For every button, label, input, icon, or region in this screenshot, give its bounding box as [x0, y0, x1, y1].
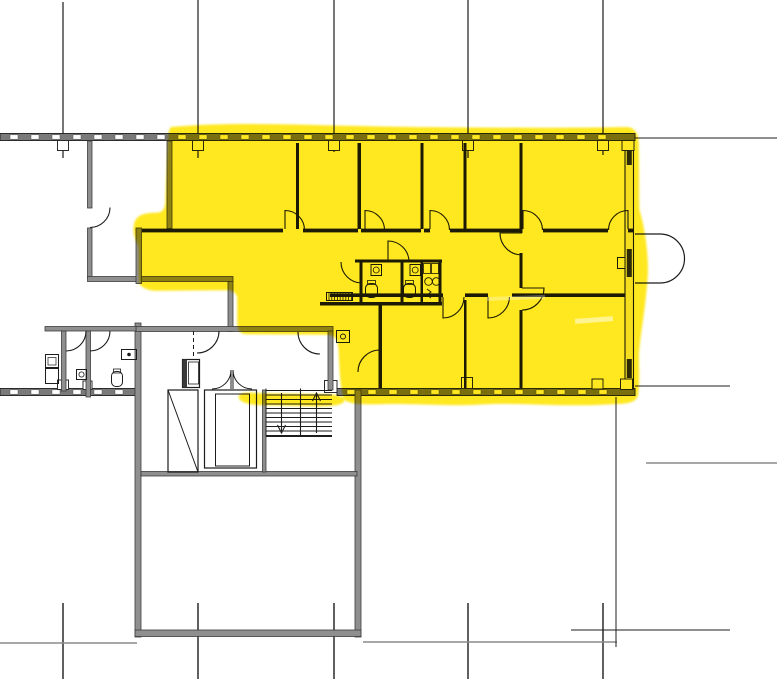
window-gap [10, 135, 18, 139]
window-gap [94, 135, 102, 139]
door-arc [197, 331, 219, 353]
urinal [46, 355, 59, 368]
wall [86, 331, 91, 397]
highlight-region [133, 124, 648, 405]
stair-core-west-wall [135, 323, 141, 637]
door-arc [90, 208, 110, 228]
elevator-doors [212, 370, 252, 389]
door-arc [90, 331, 110, 351]
floor-plan-page [0, 0, 777, 679]
window-gap [115, 390, 123, 394]
door-arc [298, 332, 320, 354]
wc-block-north-wall [45, 327, 136, 332]
wall [88, 228, 93, 278]
wall-sink-drain [127, 353, 131, 357]
window-gap [136, 135, 144, 139]
wall [62, 331, 67, 391]
sink [77, 370, 87, 380]
toilet [112, 372, 123, 387]
urinal [46, 369, 59, 384]
urinal-inner [48, 358, 56, 366]
highlight-overlay [133, 124, 648, 406]
highlight-smear [239, 393, 345, 407]
column [58, 141, 69, 151]
duct-closet-side [183, 360, 188, 388]
floor-plan-drawing [0, 0, 777, 679]
elevator-car-inner [216, 394, 250, 466]
door-arc [66, 331, 86, 351]
window-gap [31, 135, 39, 139]
sink-basin [79, 372, 84, 377]
stair-core-south-wall [135, 630, 361, 637]
window-gap [73, 390, 81, 394]
window-gap [94, 390, 102, 394]
window-gap [10, 390, 18, 394]
window-gap [73, 135, 81, 139]
duct-closet-inner [189, 362, 199, 384]
window-gap [52, 390, 60, 394]
window-gap [31, 390, 39, 394]
window-gap [157, 135, 165, 139]
stair-core-east-wall [355, 390, 361, 637]
wall [88, 141, 93, 208]
window-gap [115, 135, 123, 139]
elevator-shaft-diagonal [168, 390, 198, 472]
window-gap [52, 135, 60, 139]
stair-lobby-east-wall [328, 331, 333, 390]
